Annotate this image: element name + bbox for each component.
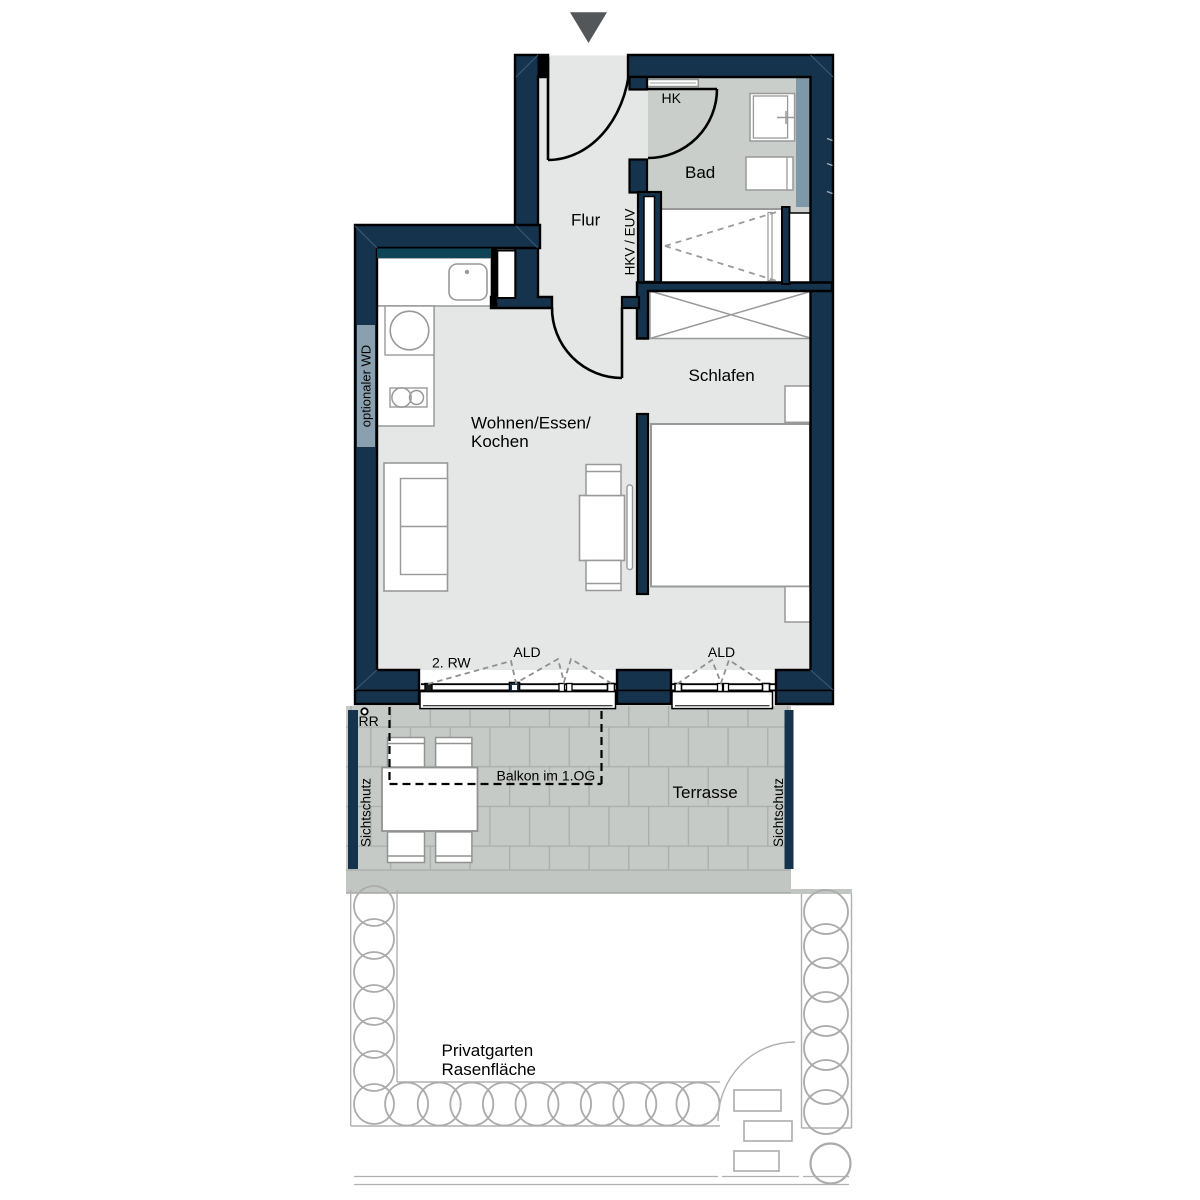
svg-text:Schlafen: Schlafen [689,366,755,385]
svg-text:ALD: ALD [708,644,735,660]
svg-text:Rasenfläche: Rasenfläche [442,1060,537,1079]
svg-text:HKV / EUV: HKV / EUV [623,209,638,276]
svg-text:Wohnen/Essen/: Wohnen/Essen/ [471,414,591,433]
svg-text:HK: HK [662,90,682,106]
svg-text:Kochen: Kochen [471,432,529,451]
svg-text:Balkon im 1.OG: Balkon im 1.OG [497,768,596,784]
svg-text:RR: RR [359,713,379,729]
svg-text:Terrasse: Terrasse [673,783,738,802]
svg-text:Privatgarten: Privatgarten [442,1041,534,1060]
svg-text:optionaler WD: optionaler WD [359,345,374,427]
svg-text:ALD: ALD [513,644,540,660]
svg-text:Sichtschutz: Sichtschutz [771,778,786,847]
svg-text:Sichtschutz: Sichtschutz [359,778,374,847]
svg-text:2. RW: 2. RW [432,655,471,671]
svg-text:Flur: Flur [571,211,601,230]
svg-text:Bad: Bad [685,163,715,182]
